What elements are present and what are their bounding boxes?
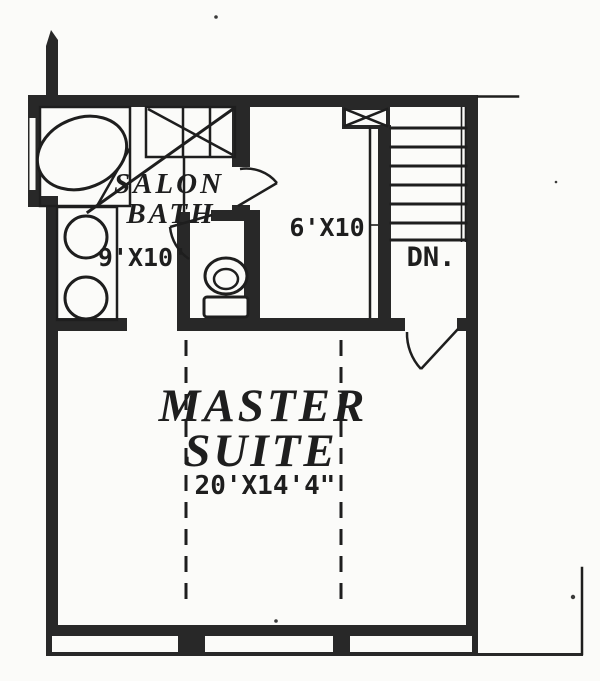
speck (214, 15, 218, 19)
label-bath: BATH (125, 198, 215, 230)
speck (274, 619, 278, 623)
wall-door-post-right (457, 318, 466, 331)
window-bottom-3 (350, 636, 472, 652)
dim-salon-bath: 9'X10' (98, 243, 188, 272)
dim-master-suite: 20'X14'4" (195, 471, 336, 501)
wall-top (28, 95, 478, 107)
wall-bottom-edge (46, 653, 583, 656)
window-bottom-1 (52, 636, 178, 652)
toilet (204, 258, 248, 317)
chase-x-box (344, 108, 388, 127)
wall-bath-bottom-right (177, 318, 405, 331)
toilet-tank (204, 297, 248, 317)
floor-plan-page: SALON BATH 9'X10' 6'X10 DN. MASTER SUITE… (0, 0, 600, 681)
floor-plan-canvas: SALON BATH 9'X10' 6'X10 DN. MASTER SUITE… (0, 0, 600, 681)
wall-right (466, 95, 478, 653)
speck (555, 181, 558, 184)
label-suite: SUITE (184, 425, 337, 477)
wall-stairwell-left (378, 125, 391, 330)
wall-bath-right-cap (232, 205, 250, 218)
window-bottom-2 (205, 636, 333, 652)
window-left (30, 118, 36, 190)
label-stairs-down: DN. (407, 242, 456, 273)
speck (571, 595, 575, 599)
label-salon: SALON (114, 168, 224, 200)
dim-closet: 6'X10 (289, 213, 364, 242)
